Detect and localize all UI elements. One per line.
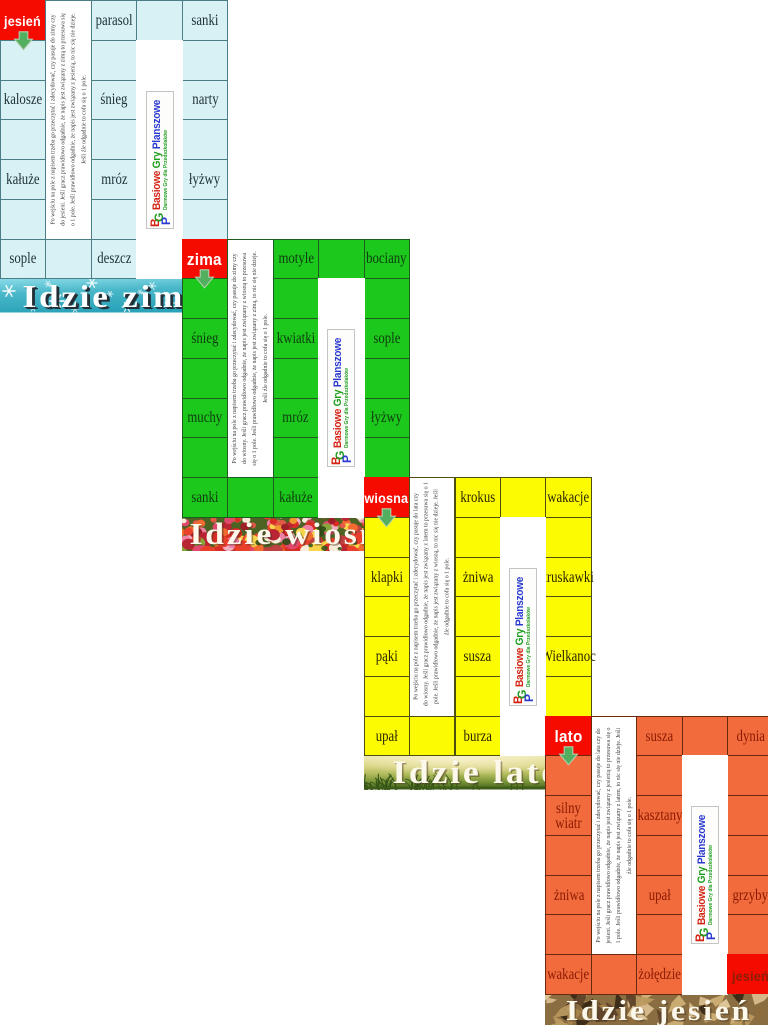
svg-text:P: P <box>159 217 172 225</box>
svg-text:P: P <box>704 932 717 940</box>
svg-text:P: P <box>522 694 535 702</box>
svg-text:P: P <box>340 455 353 463</box>
